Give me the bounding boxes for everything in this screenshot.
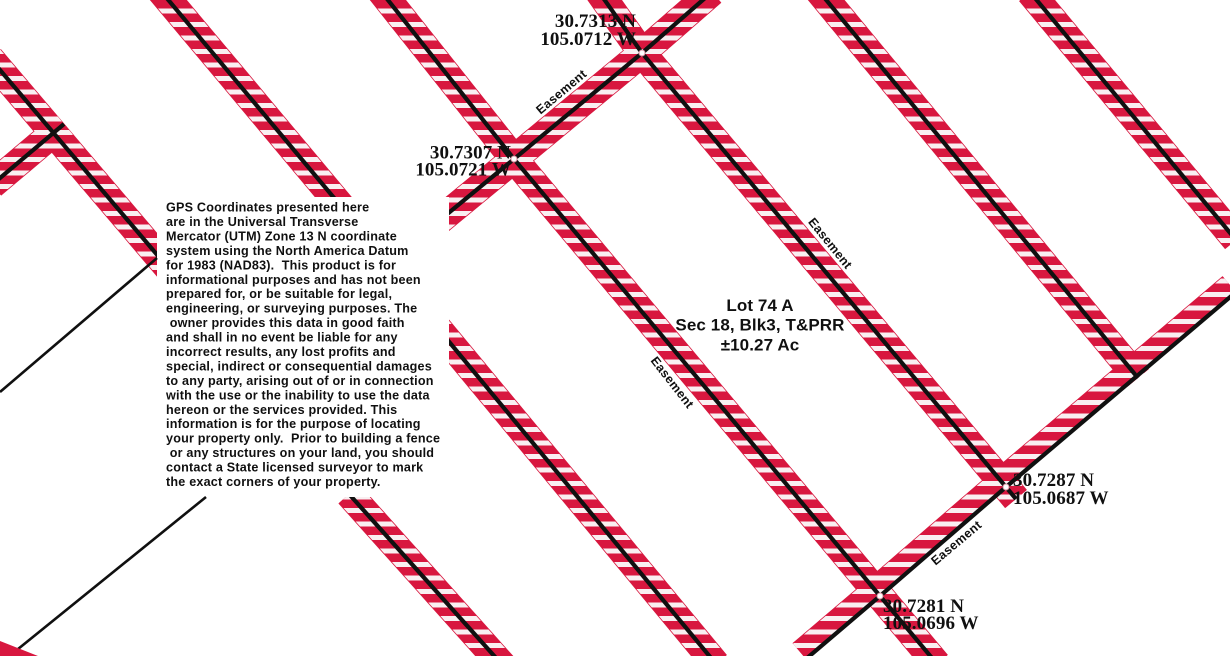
svg-text:prepared for, or be suitable f: prepared for, or be suitable for legal, [166, 287, 392, 301]
svg-text:hereon or the services provide: hereon or the services provided. This [166, 403, 397, 417]
svg-text:for 1983 (NAD83). This produc: for 1983 (NAD83). This product is for [166, 258, 396, 272]
svg-text:special, indirect or consequen: special, indirect or consequential damag… [166, 359, 432, 373]
svg-text:engineering, or surveying purp: engineering, or surveying purposes. The [166, 302, 417, 316]
svg-text:and shall in no event be liabl: and shall in no event be liable for any [166, 331, 398, 345]
svg-text:are in the Universal Transvers: are in the Universal Transverse [166, 215, 358, 229]
svg-text:or any structures on your land: or any structures on your land, you shou… [166, 446, 434, 460]
svg-text:Sec 18, Blk3, T&PRR: Sec 18, Blk3, T&PRR [675, 316, 844, 335]
svg-text:owner provides this data in go: owner provides this data in good faith [166, 316, 405, 330]
svg-text:information is for the purpose: information is for the purpose of locati… [166, 417, 421, 431]
svg-text:to any party, arising out of o: to any party, arising out of or in conne… [166, 374, 434, 388]
svg-text:105.0712 W: 105.0712 W [540, 29, 636, 50]
svg-text:Lot 74 A: Lot 74 A [726, 296, 793, 315]
svg-text:±10.27 Ac: ±10.27 Ac [721, 336, 800, 355]
svg-text:contact a State licensed surve: contact a State licensed surveyor to mar… [166, 461, 424, 475]
svg-text:GPS Coordinates presented here: GPS Coordinates presented here [166, 201, 369, 215]
svg-text:your property only. Prior to: your property only. Prior to building a … [166, 432, 440, 446]
svg-text:system using the North America: system using the North America Datum [166, 244, 409, 258]
svg-text:with the use or the inability: with the use or the inability to use the… [165, 388, 430, 402]
svg-text:informational purposes and has: informational purposes and has not been [166, 273, 421, 287]
svg-text:the exact corners of your prop: the exact corners of your property. [166, 475, 381, 489]
svg-text:Mercator (UTM) Zone 13 N coord: Mercator (UTM) Zone 13 N coordinate [166, 229, 397, 243]
svg-text:105.0721 W: 105.0721 W [415, 160, 511, 181]
svg-text:incorrect results, any lost pr: incorrect results, any lost profits and [166, 345, 396, 359]
svg-text:105.0687 W: 105.0687 W [1013, 488, 1109, 509]
svg-text:105.0696 W: 105.0696 W [883, 613, 979, 634]
